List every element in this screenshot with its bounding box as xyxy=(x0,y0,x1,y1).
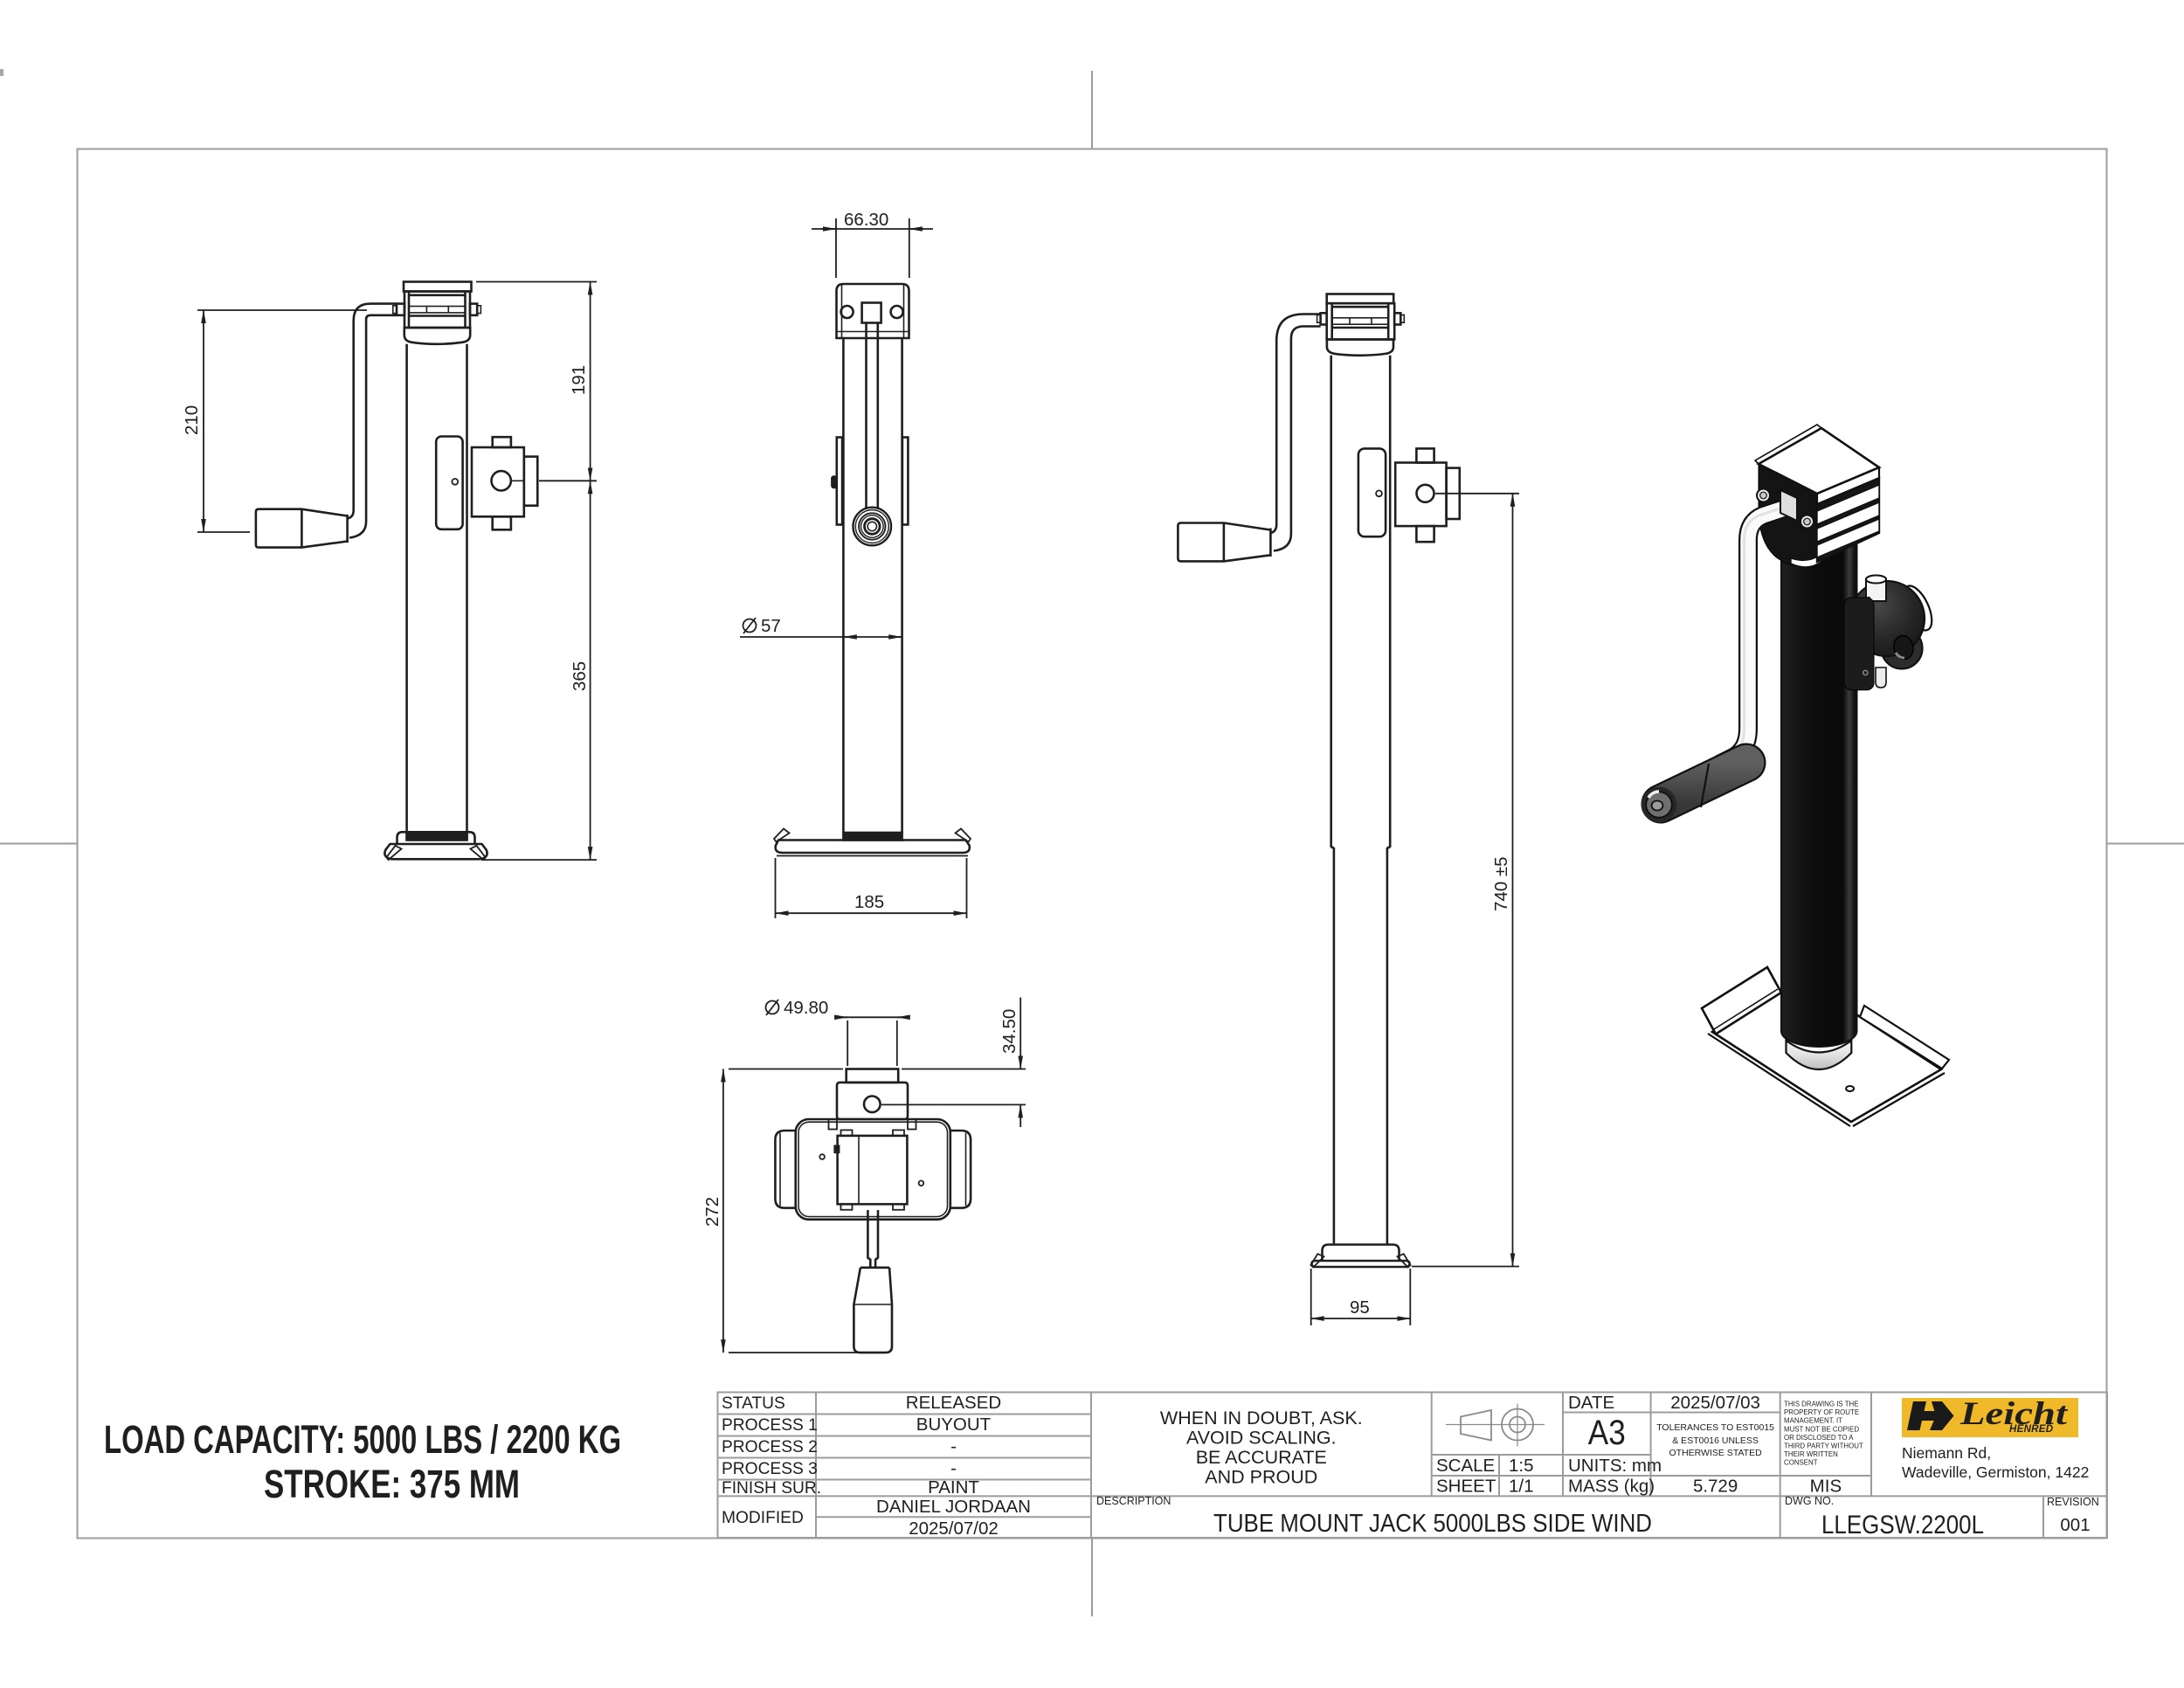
svg-text:DATE: DATE xyxy=(1568,1393,1614,1413)
svg-text:SHEET: SHEET xyxy=(1436,1477,1496,1497)
svg-text:210: 210 xyxy=(182,405,202,435)
svg-text:-: - xyxy=(950,1436,957,1456)
svg-text:STROKE: 375 MM: STROKE: 375 MM xyxy=(264,1462,520,1506)
svg-text:UNITS: mm: UNITS: mm xyxy=(1568,1456,1662,1476)
svg-text:SCALE: SCALE xyxy=(1436,1456,1495,1476)
svg-text:& EST0016 UNLESS: & EST0016 UNLESS xyxy=(1672,1435,1759,1446)
svg-text:1/1: 1/1 xyxy=(1509,1477,1534,1497)
svg-text:THIS DRAWING IS THE: THIS DRAWING IS THE xyxy=(1784,1401,1859,1408)
svg-text:THIRD PARTY WITHOUT: THIRD PARTY WITHOUT xyxy=(1784,1442,1863,1450)
svg-text:PAINT: PAINT xyxy=(928,1477,979,1498)
svg-text:-: - xyxy=(950,1458,957,1478)
svg-text:740 ±5: 740 ±5 xyxy=(1491,856,1511,911)
svg-text:365: 365 xyxy=(570,661,590,691)
svg-text:34.50: 34.50 xyxy=(999,1009,1019,1054)
svg-text:THEIR WRITTEN: THEIR WRITTEN xyxy=(1784,1450,1838,1458)
svg-text:MANAGEMENT. IT: MANAGEMENT. IT xyxy=(1784,1417,1842,1425)
svg-text:CONSENT: CONSENT xyxy=(1784,1459,1818,1467)
svg-text:95: 95 xyxy=(1350,1297,1370,1318)
svg-text:MUST NOT BE COPIED: MUST NOT BE COPIED xyxy=(1784,1425,1859,1433)
svg-text:STATUS: STATUS xyxy=(722,1394,785,1413)
svg-text:PROCESS 1: PROCESS 1 xyxy=(722,1416,818,1435)
svg-text:OTHERWISE STATED: OTHERWISE STATED xyxy=(1669,1448,1763,1458)
svg-text:2025/07/03: 2025/07/03 xyxy=(1670,1393,1760,1413)
svg-text:HENRED: HENRED xyxy=(2009,1424,2053,1435)
svg-text:Niemann Rd,: Niemann Rd, xyxy=(1902,1444,1991,1462)
svg-text:5.729: 5.729 xyxy=(1693,1477,1738,1497)
svg-text:AND PROUD: AND PROUD xyxy=(1205,1467,1317,1488)
svg-text:MIS: MIS xyxy=(1810,1477,1842,1497)
svg-text:LLEGSW.2200L: LLEGSW.2200L xyxy=(1821,1511,1984,1539)
svg-text:REVISION: REVISION xyxy=(2047,1496,2099,1508)
svg-text:PROCESS 3: PROCESS 3 xyxy=(722,1460,818,1478)
svg-text:BE ACCURATE: BE ACCURATE xyxy=(1196,1447,1327,1468)
svg-text:WHEN IN DOUBT, ASK.: WHEN IN DOUBT, ASK. xyxy=(1160,1408,1363,1429)
svg-text:Wadeville, Germiston, 1422: Wadeville, Germiston, 1422 xyxy=(1902,1463,2089,1481)
svg-text:AVOID SCALING.: AVOID SCALING. xyxy=(1186,1428,1337,1449)
svg-text:66.30: 66.30 xyxy=(844,210,888,230)
svg-text:DANIEL JORDAAN: DANIEL JORDAAN xyxy=(876,1497,1031,1517)
svg-text:PROPERTY OF ROUTE: PROPERTY OF ROUTE xyxy=(1784,1408,1859,1416)
svg-text:PROCESS 2: PROCESS 2 xyxy=(722,1438,818,1456)
svg-text:TUBE MOUNT JACK 5000LBS SIDE W: TUBE MOUNT JACK 5000LBS SIDE WIND xyxy=(1213,1510,1652,1538)
svg-text:DWG NO.: DWG NO. xyxy=(1785,1495,1834,1507)
svg-text:OR DISCLOSED TO A: OR DISCLOSED TO A xyxy=(1784,1434,1854,1442)
svg-text:TOLERANCES TO EST0015: TOLERANCES TO EST0015 xyxy=(1656,1422,1774,1433)
svg-text:57: 57 xyxy=(761,616,781,636)
svg-text:185: 185 xyxy=(854,892,884,912)
svg-text:272: 272 xyxy=(702,1197,722,1227)
svg-text:FINISH SUR.: FINISH SUR. xyxy=(722,1479,821,1498)
svg-text:A3: A3 xyxy=(1588,1414,1626,1452)
svg-text:49.80: 49.80 xyxy=(784,998,828,1018)
svg-text:MASS (kg): MASS (kg) xyxy=(1568,1477,1655,1497)
svg-text:LOAD CAPACITY: 5000 LBS / 2200: LOAD CAPACITY: 5000 LBS / 2200 KG xyxy=(104,1417,621,1462)
svg-text:1:5: 1:5 xyxy=(1509,1456,1534,1476)
svg-text:MODIFIED: MODIFIED xyxy=(722,1509,804,1527)
svg-text:2025/07/02: 2025/07/02 xyxy=(909,1519,999,1539)
svg-text:001: 001 xyxy=(2060,1515,2090,1535)
svg-text:BUYOUT: BUYOUT xyxy=(916,1415,992,1435)
svg-text:DESCRIPTION: DESCRIPTION xyxy=(1096,1495,1171,1507)
svg-text:191: 191 xyxy=(569,365,589,395)
svg-text:RELEASED: RELEASED xyxy=(906,1393,1001,1413)
